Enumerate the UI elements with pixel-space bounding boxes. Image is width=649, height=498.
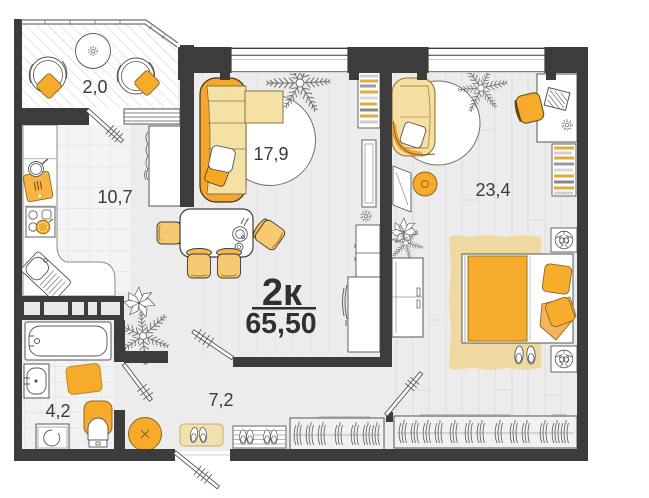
svg-text:7,2: 7,2 bbox=[208, 390, 233, 410]
svg-text:65,50: 65,50 bbox=[245, 308, 316, 340]
svg-text:2,0: 2,0 bbox=[82, 77, 107, 97]
svg-text:10,7: 10,7 bbox=[97, 187, 132, 207]
svg-text:23,4: 23,4 bbox=[475, 180, 510, 200]
svg-text:17,9: 17,9 bbox=[253, 144, 288, 164]
svg-text:4,2: 4,2 bbox=[45, 401, 70, 421]
